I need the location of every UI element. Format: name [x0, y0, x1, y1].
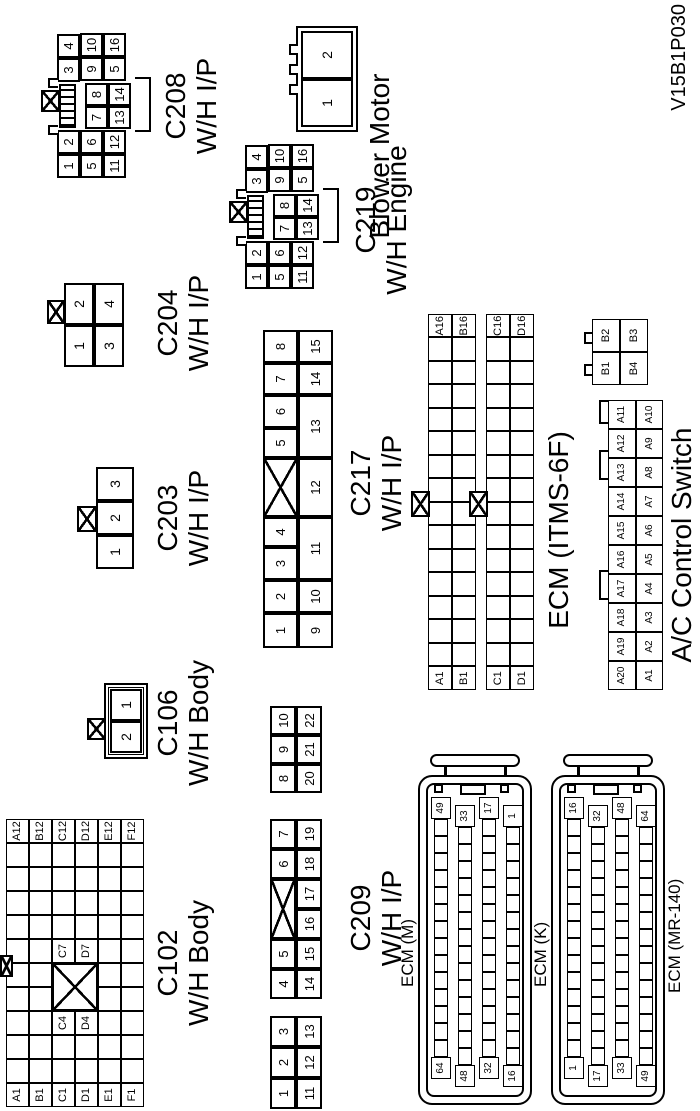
label-c203-subtitle: W/H I/P: [183, 462, 214, 574]
pin-cell: 2: [96, 501, 134, 535]
label-c208-title: C208: [160, 31, 191, 181]
pin-cell: [458, 1014, 472, 1031]
pin-cell: 2: [263, 580, 298, 613]
pin-cell: [639, 895, 653, 912]
pin-cell: [29, 915, 52, 939]
lock-tab-cross: [469, 491, 488, 517]
pin-cell: [591, 861, 605, 878]
lock-tab-cross: [41, 90, 60, 112]
pin-cell: F12: [121, 819, 144, 843]
pin-cell: [510, 596, 534, 620]
pin-cell: [452, 361, 476, 385]
pin-cell: [482, 1023, 496, 1040]
pin-cell: 6: [263, 395, 298, 428]
pin-cell: B2: [592, 319, 620, 352]
label-blower-motor: Blower Motor: [364, 56, 395, 256]
pin-cell: [615, 1040, 629, 1057]
pin-cell: 11: [296, 1078, 322, 1109]
mount-bracket: [135, 77, 151, 132]
pin-cell: [428, 643, 452, 667]
pin-cell: [6, 891, 29, 915]
pin-cell: [486, 432, 510, 456]
pin-cell: [121, 891, 144, 915]
label-c203-title: C203: [152, 462, 183, 574]
pin-cell: 1: [263, 613, 298, 648]
pin-cell: [639, 946, 653, 963]
pin-cell: 16: [291, 144, 314, 168]
pin-cell: [639, 861, 653, 878]
pin-cell: 3: [245, 169, 268, 193]
pin-cell: 21: [296, 735, 322, 764]
pin-cell: [98, 987, 121, 1011]
pin-cell: 10: [80, 33, 103, 57]
keying-tab: [633, 784, 642, 793]
pin-cell: A3: [636, 603, 663, 632]
pin-cell: [98, 1035, 121, 1059]
pin-cell: D16: [510, 314, 534, 338]
pin-cell: [452, 526, 476, 550]
pin-cell: [615, 955, 629, 972]
label-ac-title: A/C Control Switch: [666, 400, 697, 690]
clip-tab: [599, 400, 610, 424]
pin-cell: 2: [64, 283, 94, 325]
pin-cell: C1: [52, 1083, 75, 1107]
pin-cell: [506, 980, 520, 997]
pin-cell: [121, 1059, 144, 1083]
pin-cell: 22: [296, 706, 322, 735]
pin-cell: [29, 1035, 52, 1059]
pin-cell: [452, 643, 476, 667]
pin-cell: 1: [64, 325, 94, 367]
label-c217: C217 W/H I/P: [345, 425, 407, 541]
pin-cell: [434, 989, 448, 1006]
pin-cell: [6, 1011, 29, 1035]
pin-cell: [567, 870, 581, 887]
pin-cell: 7: [270, 819, 296, 849]
pin-cell: [506, 844, 520, 861]
pin-cell: 14: [296, 969, 322, 999]
pin-cell: [29, 987, 52, 1011]
pin-cell: 5: [103, 57, 126, 81]
pin-cell: [567, 853, 581, 870]
pin-cell: [482, 1006, 496, 1023]
pin-cell: 4: [245, 145, 268, 169]
pin-cell: [510, 455, 534, 479]
pin-cell: [52, 987, 75, 1011]
pin-cell: [482, 887, 496, 904]
label-c208-subtitle: W/H I/P: [191, 31, 222, 181]
pin-number-cell: 48: [455, 1065, 475, 1087]
pin-cell: [567, 938, 581, 955]
pin-cell: [567, 819, 581, 836]
pin-cell: 8: [270, 764, 296, 793]
pin-cell: [506, 827, 520, 844]
pin-cell: 5: [291, 168, 314, 192]
pin-cell: A1: [636, 661, 663, 690]
pin-cell: [591, 1014, 605, 1031]
pin-cell: [75, 1035, 98, 1059]
pin-cell: [75, 987, 98, 1011]
pin-cell: 10: [270, 706, 296, 735]
pin-cell: [591, 878, 605, 895]
pin-cell: [458, 946, 472, 963]
pin-cell: [29, 963, 52, 987]
pin-cell: [567, 904, 581, 921]
pin-cell: 3: [263, 547, 298, 580]
keying-tab: [593, 784, 619, 795]
pin-cell: 16: [296, 909, 322, 939]
pin-cell: A12: [6, 819, 29, 843]
pin-cell: [6, 915, 29, 939]
pin-cell: 8: [273, 194, 296, 217]
pin-cell: [452, 432, 476, 456]
label-c217-subtitle: W/H I/P: [376, 425, 407, 541]
pin-cell: [458, 844, 472, 861]
pin-cell: 11: [103, 154, 126, 178]
pin-cell: 9: [270, 735, 296, 764]
pin-cell: [6, 867, 29, 891]
pin-cell: [615, 853, 629, 870]
pin-cell: 15: [296, 939, 322, 969]
ecm-outer-shell: [551, 775, 665, 1105]
pin-cell: 2: [245, 241, 268, 265]
pin-cell: 2: [270, 1047, 296, 1078]
pin-number-cell: 33: [612, 1057, 632, 1079]
pin-cell: 2: [301, 31, 353, 79]
pin-cell: B1: [592, 352, 620, 385]
pin-cell: [75, 843, 98, 867]
pin-cell: 7: [273, 217, 296, 240]
pin-cell: [428, 549, 452, 573]
pin-cell: [428, 408, 452, 432]
pin-cell: E12: [98, 819, 121, 843]
pin-cell: [428, 573, 452, 597]
pin-cell: C16: [486, 314, 510, 338]
pin-number-cell: 64: [636, 805, 656, 827]
pin-cell: [452, 479, 476, 503]
pin-cell: [434, 955, 448, 972]
pin-cell: A2: [636, 632, 663, 661]
ecm-outer-shell: [418, 775, 532, 1105]
pin-cell: [434, 921, 448, 938]
pin-cell: B12: [29, 819, 52, 843]
pin-cell: [29, 1059, 52, 1083]
pin-cell: [121, 1035, 144, 1059]
pin-cell: 18: [296, 849, 322, 879]
pin-cell: [486, 620, 510, 644]
pin-cell: [452, 502, 476, 526]
pin-cell: [458, 878, 472, 895]
pin-cell: [506, 963, 520, 980]
pin-cell: [615, 819, 629, 836]
harness-handle: [563, 754, 653, 767]
pin-number-cell: 16: [503, 1065, 523, 1087]
pin-cell: B1: [452, 667, 476, 691]
pin-number-cell: 48: [612, 797, 632, 819]
pin-cell: [506, 929, 520, 946]
pin-cell: 13: [296, 1016, 322, 1047]
pin-cell: [639, 1048, 653, 1065]
clip-tab: [48, 78, 58, 88]
pin-cell: D12: [75, 819, 98, 843]
pin-cell: A16: [608, 545, 636, 574]
pin-cell: 1: [301, 79, 353, 127]
pin-cell: [486, 526, 510, 550]
pin-cell: [482, 853, 496, 870]
pin-cell: [510, 643, 534, 667]
pin-number-cell: 32: [479, 1057, 499, 1079]
pin-cell: 10: [298, 580, 333, 613]
pin-cell: [482, 955, 496, 972]
pin-number-cell: 33: [455, 805, 475, 827]
pin-cell: [510, 432, 534, 456]
strap-link: [577, 765, 580, 777]
pin-cell: [639, 929, 653, 946]
pin-cell: 8: [85, 83, 108, 106]
figure-id: V15B1P030: [668, 4, 690, 116]
pin-cell: 12: [298, 458, 333, 517]
pin-cell: [458, 861, 472, 878]
pin-cell: [75, 963, 98, 987]
pin-cell: 14: [108, 83, 131, 106]
pin-cell: 4: [94, 283, 124, 325]
lock-hatch: [59, 84, 76, 128]
strap-link: [444, 765, 447, 777]
pin-cell: [486, 643, 510, 667]
pin-cell: D4: [75, 1011, 98, 1035]
pin-cell: 1: [110, 689, 142, 721]
pin-cell: A18: [608, 603, 636, 632]
pin-cell: 13: [298, 395, 333, 458]
clip-tab: [584, 332, 594, 344]
pin-cell: [615, 887, 629, 904]
pin-cell: A1: [428, 667, 452, 691]
pin-cell: [482, 938, 496, 955]
pin-cell: [615, 870, 629, 887]
pin-cell: [591, 827, 605, 844]
pin-cell: [567, 1023, 581, 1040]
pin-cell: [506, 997, 520, 1014]
pin-cell: [52, 963, 75, 987]
pin-number-cell: 1: [564, 1057, 584, 1079]
pin-cell: [98, 891, 121, 915]
pin-cell: [486, 479, 510, 503]
pin-cell: [591, 1031, 605, 1048]
pin-cell: [506, 895, 520, 912]
pin-cell: [452, 549, 476, 573]
pin-cell: 1: [270, 1078, 296, 1109]
pin-cell: [452, 596, 476, 620]
pin-cell: [121, 867, 144, 891]
pin-cell: [482, 836, 496, 853]
pin-cell: [452, 385, 476, 409]
pin-cell: 3: [57, 58, 80, 82]
label-ecm-m: ECM (M): [399, 919, 417, 987]
pin-cell: [567, 972, 581, 989]
pin-cell: [639, 997, 653, 1014]
pin-cell: C1: [486, 667, 510, 691]
pin-cell: [75, 867, 98, 891]
pin-cell: 4: [270, 969, 296, 999]
pin-cell: [458, 912, 472, 929]
pin-cell: [458, 929, 472, 946]
mount-bracket: [323, 188, 339, 243]
pin-number-cell: 49: [431, 797, 451, 819]
pin-cell: [75, 1059, 98, 1083]
pin-cell: [482, 870, 496, 887]
pin-cell: [615, 921, 629, 938]
pin-cell: B16: [452, 314, 476, 338]
pin-cell: [434, 853, 448, 870]
pin-cell: 1: [245, 265, 268, 289]
pin-cell: C7: [52, 939, 75, 963]
pin-cell: 1: [96, 535, 134, 569]
pin-cell: 9: [80, 57, 103, 81]
pin-cell: D7: [75, 939, 98, 963]
pin-cell: [29, 843, 52, 867]
pin-cell: [428, 526, 452, 550]
label-ecm-itms-title: ECM (ITMS-6F): [543, 375, 574, 685]
pin-cell: [98, 963, 121, 987]
pin-cell: [452, 573, 476, 597]
pin-number-cell: 1: [503, 805, 523, 827]
clip-tab: [236, 189, 246, 199]
pin-cell: 14: [296, 194, 319, 217]
pin-cell: A14: [608, 487, 636, 516]
cross-mark: [270, 879, 296, 939]
pin-cell: [98, 1011, 121, 1035]
label-c204-title: C204: [152, 271, 183, 375]
pin-cell: [591, 929, 605, 946]
pin-cell: [482, 819, 496, 836]
pin-cell: [486, 455, 510, 479]
pin-cell: [52, 843, 75, 867]
pin-cell: 6: [268, 241, 291, 265]
pin-cell: A8: [636, 458, 663, 487]
pin-cell: [452, 455, 476, 479]
pin-cell: [428, 502, 452, 526]
pin-cell: [639, 980, 653, 997]
pin-cell: [6, 843, 29, 867]
pin-cell: [482, 921, 496, 938]
pin-cell: E1: [98, 1083, 121, 1107]
clip-tab: [236, 236, 246, 246]
pin-cell: [29, 891, 52, 915]
label-ecm-itms: ECM (ITMS-6F): [543, 375, 574, 685]
pin-cell: [591, 912, 605, 929]
pin-cell: [121, 963, 144, 987]
pin-cell: 5: [270, 939, 296, 969]
clip-tab: [599, 450, 610, 480]
keying-tab: [460, 784, 486, 795]
pin-cell: [615, 904, 629, 921]
pin-cell: [615, 1023, 629, 1040]
clip-tab: [289, 44, 298, 55]
pin-cell: A16: [428, 314, 452, 338]
pin-cell: [52, 1035, 75, 1059]
pin-cell: [567, 989, 581, 1006]
pin-cell: 3: [270, 1016, 296, 1047]
ecm-inner-shell: [426, 783, 524, 1097]
pin-cell: 14: [298, 363, 333, 395]
pin-number-cell: 17: [479, 797, 499, 819]
pin-cell: [452, 620, 476, 644]
pin-cell: [98, 843, 121, 867]
pin-cell: [615, 1006, 629, 1023]
pin-number-cell: 17: [588, 1065, 608, 1087]
pin-cell: 3: [94, 325, 124, 367]
pin-cell: [510, 573, 534, 597]
pin-cell: A12: [608, 429, 636, 458]
pin-cell: 5: [268, 265, 291, 289]
pin-cell: A19: [608, 632, 636, 661]
pin-cell: [510, 620, 534, 644]
pin-cell: [615, 972, 629, 989]
harness-handle: [430, 754, 520, 767]
pin-cell: 11: [291, 265, 314, 289]
pin-cell: [486, 408, 510, 432]
pin-cell: 7: [85, 106, 108, 129]
pin-cell: A15: [608, 516, 636, 545]
pin-cell: [615, 836, 629, 853]
pin-cell: [510, 361, 534, 385]
pin-cell: B1: [29, 1083, 52, 1107]
pin-cell: A4: [636, 574, 663, 603]
pin-cell: [98, 915, 121, 939]
pin-cell: 2: [110, 721, 142, 753]
pin-cell: [486, 361, 510, 385]
strap-link: [637, 765, 640, 777]
pin-cell: [428, 338, 452, 362]
pin-cell: [615, 989, 629, 1006]
cross-mark: [52, 963, 98, 1011]
lock-tab-cross: [77, 506, 97, 532]
clip-tab: [289, 84, 298, 95]
pin-cell: 19: [296, 819, 322, 849]
pin-cell: [98, 867, 121, 891]
lock-tab-cross: [229, 201, 248, 223]
pin-cell: 13: [296, 217, 319, 240]
pin-cell: [506, 878, 520, 895]
pin-cell: A11: [608, 400, 636, 429]
label-ecm-mr-140: ECM (MR-140): [666, 879, 684, 993]
pin-cell: [510, 502, 534, 526]
pin-cell: 15: [298, 330, 333, 363]
label-ac-control-switch: A/C Control Switch: [666, 400, 697, 690]
pin-cell: 8: [263, 330, 298, 363]
pin-cell: A20: [608, 661, 636, 690]
pin-cell: [639, 827, 653, 844]
pin-cell: 12: [291, 241, 314, 265]
pin-cell: [428, 385, 452, 409]
pin-cell: 1: [57, 154, 80, 178]
label-c217-title: C217: [345, 425, 376, 541]
pin-cell: [434, 1006, 448, 1023]
label-c106-subtitle: W/H Body: [183, 658, 214, 788]
pin-cell: [458, 963, 472, 980]
pin-cell: D1: [75, 1083, 98, 1107]
connector-outline: [104, 683, 148, 759]
pin-cell: [615, 938, 629, 955]
pin-cell: [428, 361, 452, 385]
pin-cell: [506, 912, 520, 929]
pin-cell: [482, 1040, 496, 1057]
pin-cell: 9: [268, 168, 291, 192]
pin-cell: 12: [103, 130, 126, 154]
cross-mark: [263, 458, 298, 517]
pin-cell: [486, 549, 510, 573]
diagram-canvas: A1A12B1B12C1C4C7C12D1D4D7D12E1E12F1F12 2…: [0, 0, 700, 1111]
